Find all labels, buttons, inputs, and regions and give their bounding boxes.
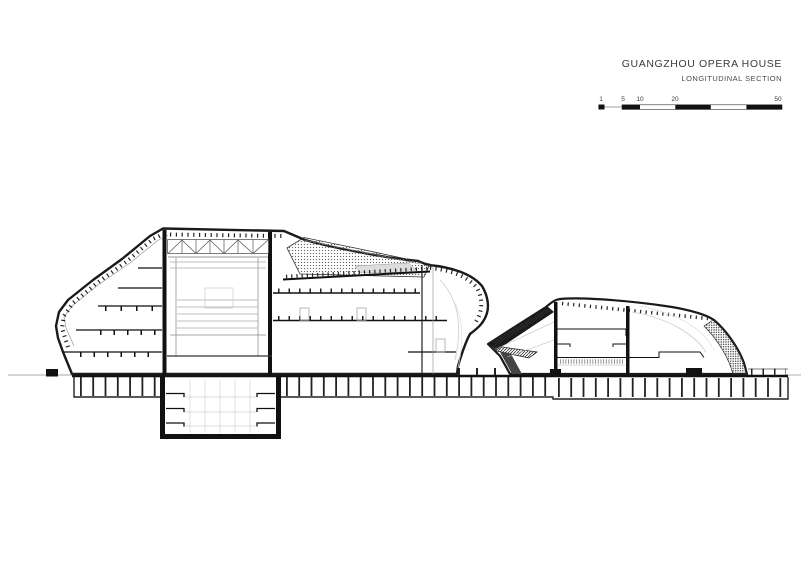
scale-label-5: 5 [621,96,625,103]
hall-wall-left [554,302,558,375]
gridshell-roof-elevation [287,238,430,278]
hall-wall-right [626,306,630,375]
scale-label-10: 10 [636,96,644,103]
plaza-edge-block [46,369,58,377]
pit-wall-left [160,376,165,438]
pit-floor [160,434,281,439]
base-anchor-block [550,369,561,376]
scale-bar-segment [675,105,711,110]
pit-gallery-brackets [166,394,275,427]
basement [72,369,788,439]
stage-pit [160,376,281,439]
basement-slab-bottom [74,377,788,399]
scale-label-1: 1 [599,96,603,103]
drawing-sheet: GUANGZHOU OPERA HOUSE LONGITUDINAL SECTI… [0,0,810,572]
pit-wall-right [276,376,281,438]
section-drawing-canvas: 1 5 10 20 50 [0,0,810,572]
scale-label-20: 20 [671,96,679,103]
main-hall-section [56,229,488,376]
scale-bar-segment [622,105,640,110]
scale-label-50: 50 [774,96,782,103]
base-anchor-block [686,368,702,376]
scale-bar-segment [746,105,782,110]
multifunction-hall-section [488,298,747,376]
stage-tower-wall-left [163,230,167,375]
scale-bar-unit-mark [599,105,605,110]
scale-bar: 1 5 10 20 50 [598,96,782,110]
pit-machinery-lines [183,380,257,433]
